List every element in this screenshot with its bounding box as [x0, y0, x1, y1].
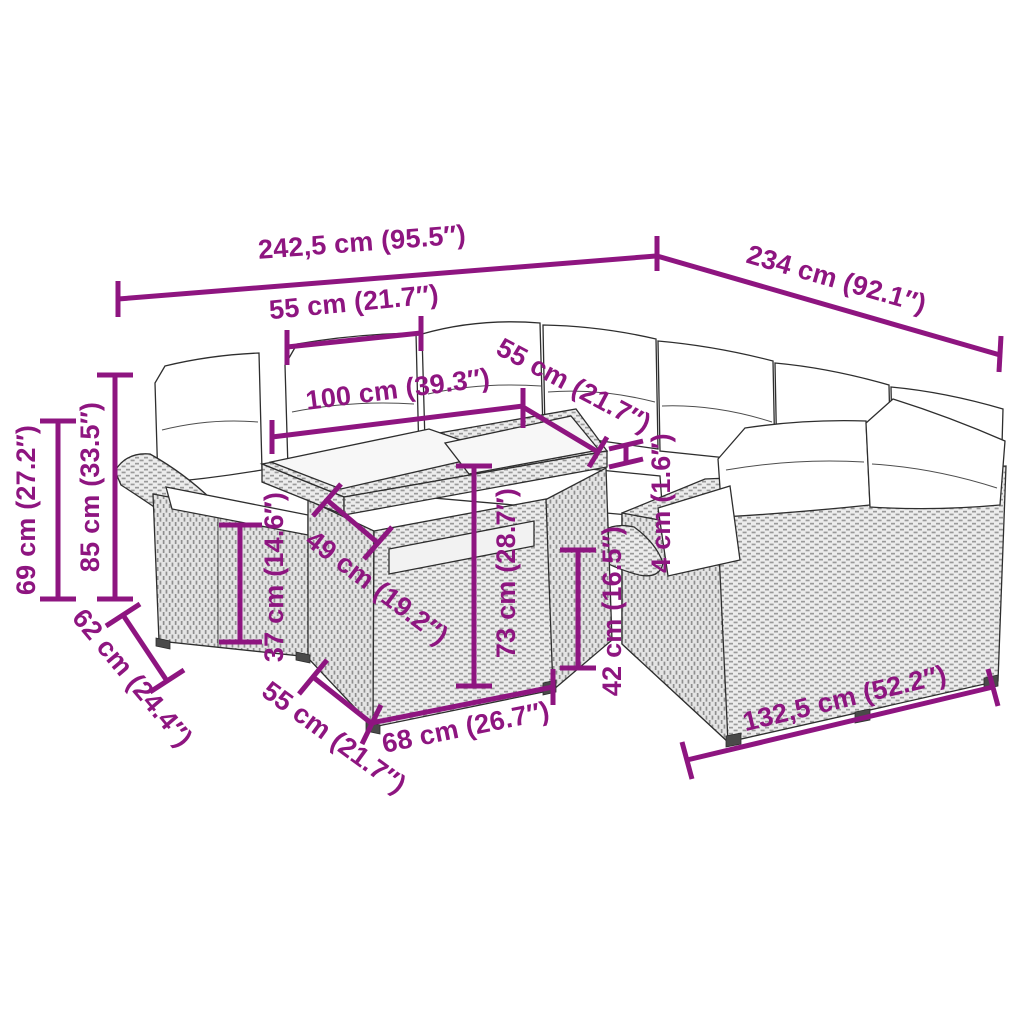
dim-label: 4 cm (1.6″) — [646, 433, 676, 573]
dim-label: 73 cm (28.7″) — [491, 488, 521, 658]
left-back-cushion — [155, 353, 262, 483]
dim-label: 37 cm (14.6″) — [259, 492, 289, 662]
right-back-cushion — [718, 421, 870, 517]
dim-tick — [299, 660, 327, 694]
furniture-dimension-diagram: 242,5 cm (95.5″) 234 cm (92.1″) 55 cm (2… — [0, 0, 1024, 1024]
dim-label: 42 cm (16.5″) — [597, 526, 627, 696]
dim-armrest-height: 69 cm (27.2″) — [11, 421, 76, 599]
dimension-diagram-page: 242,5 cm (95.5″) 234 cm (92.1″) 55 cm (2… — [0, 0, 1024, 1024]
dim-tick — [106, 604, 140, 626]
dim-label: 85 cm (33.5″) — [75, 402, 105, 572]
dim-label: 69 cm (27.2″) — [11, 425, 41, 595]
dim-label: 242,5 cm (95.5″) — [257, 219, 467, 265]
dim-tick — [999, 336, 1001, 372]
